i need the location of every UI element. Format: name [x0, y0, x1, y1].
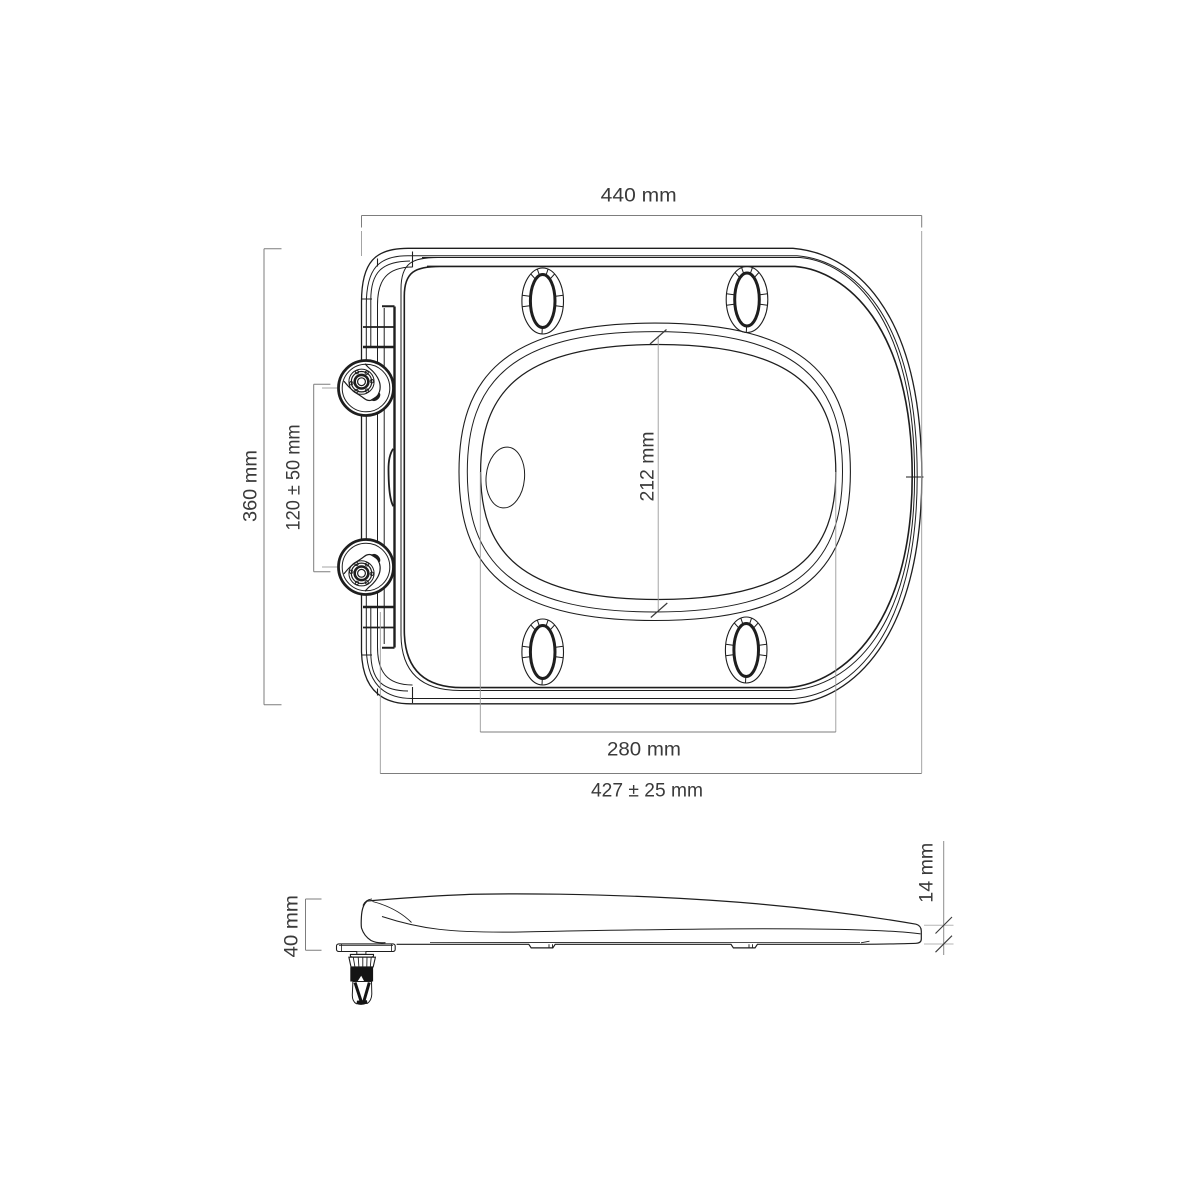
svg-text:360 mm: 360 mm — [240, 450, 262, 522]
svg-text:280 mm: 280 mm — [607, 739, 681, 761]
svg-text:14 mm: 14 mm — [916, 843, 938, 903]
svg-text:427 ± 25 mm: 427 ± 25 mm — [591, 780, 703, 802]
svg-text:212 mm: 212 mm — [637, 432, 659, 502]
svg-text:440 mm: 440 mm — [601, 185, 677, 207]
svg-text:120 ± 50 mm: 120 ± 50 mm — [283, 425, 305, 531]
svg-text:40 mm: 40 mm — [281, 895, 303, 958]
